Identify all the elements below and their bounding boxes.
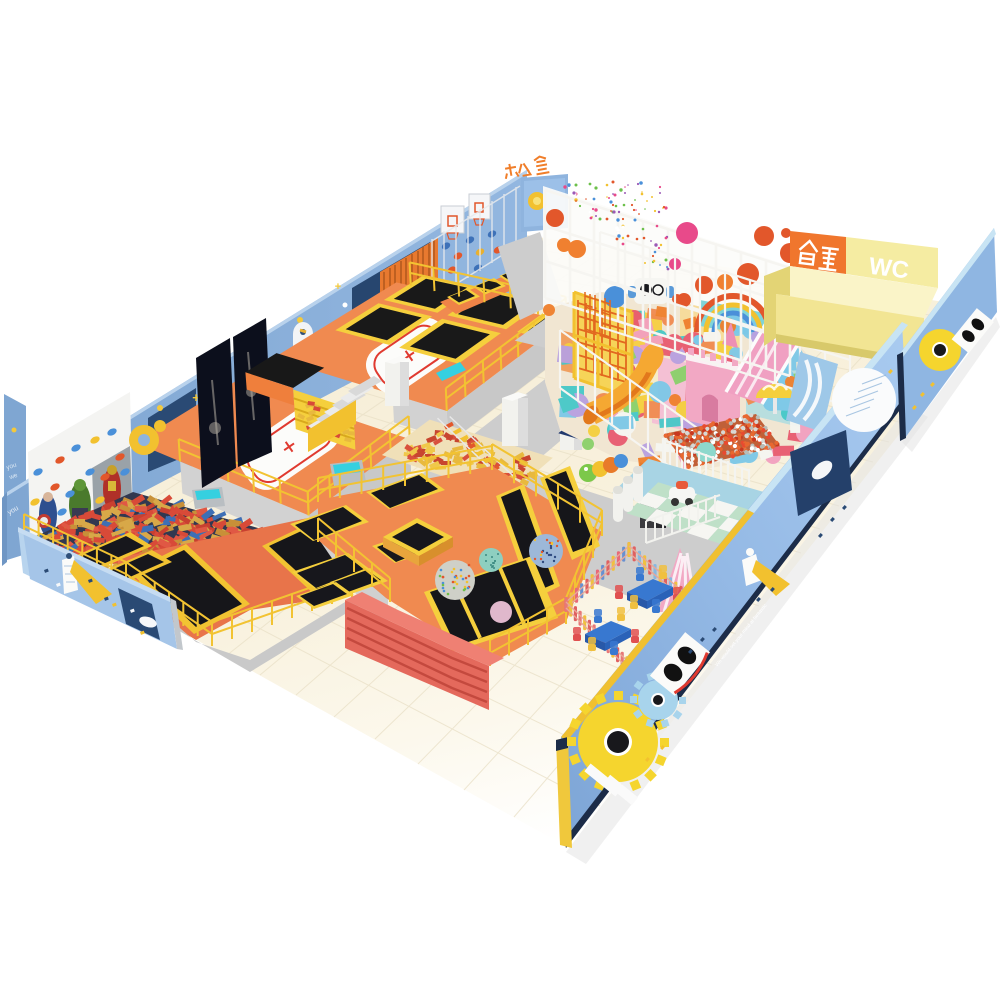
svg-text:+: + [335,281,341,293]
